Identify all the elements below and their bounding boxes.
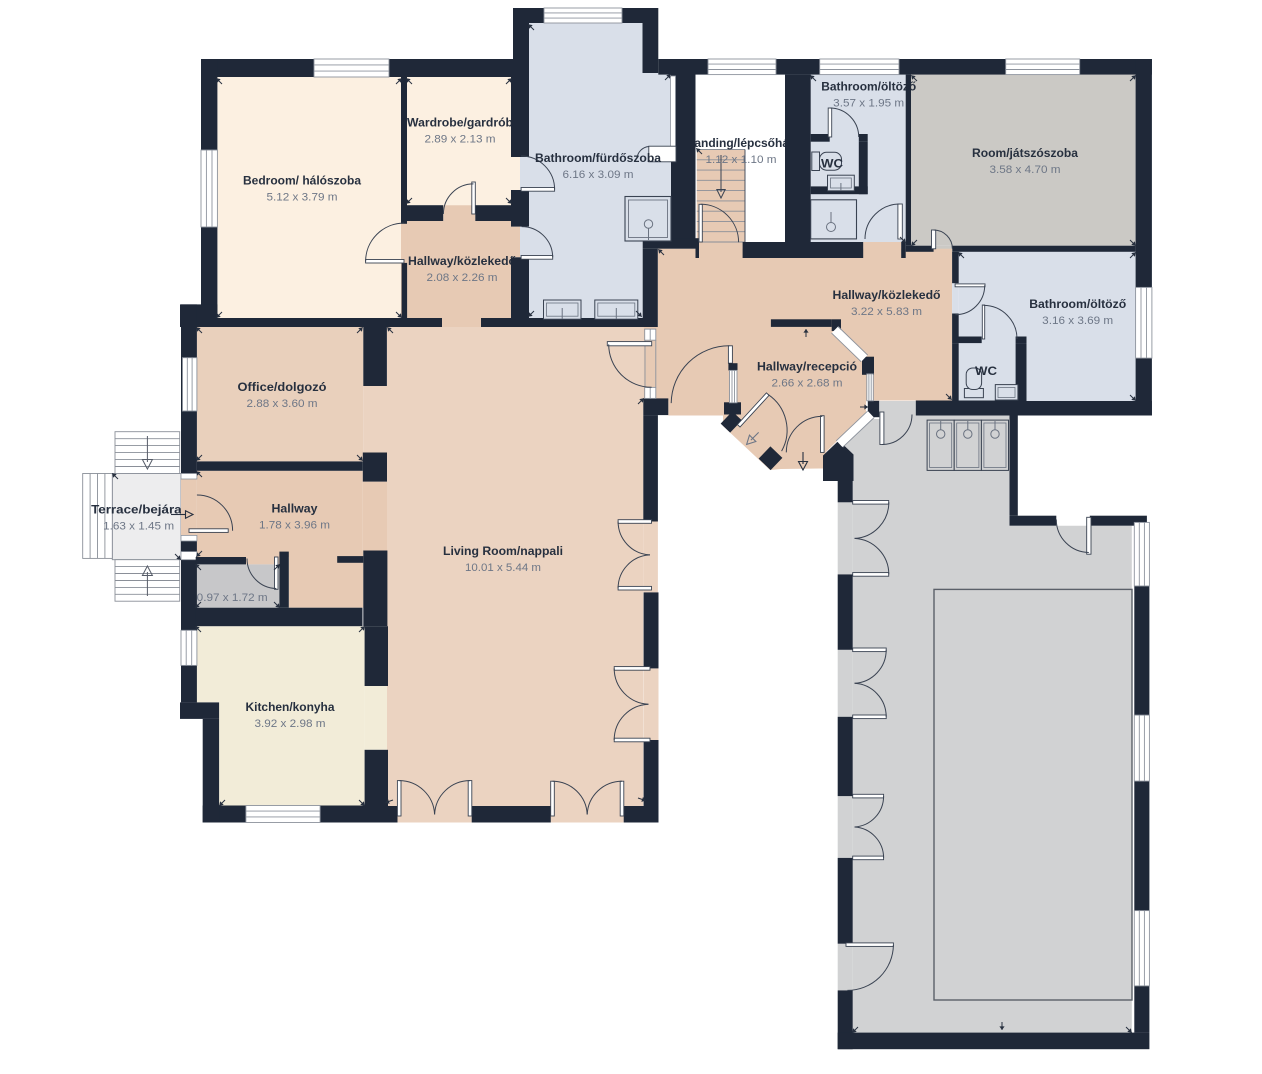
svg-text:5.12 x 3.79 m: 5.12 x 3.79 m xyxy=(267,192,338,204)
svg-text:Bedroom/ hálószoba: Bedroom/ hálószoba xyxy=(243,174,361,188)
svg-text:Hallway/közlekedő: Hallway/közlekedő xyxy=(408,254,516,268)
svg-text:Kitchen/konyha: Kitchen/konyha xyxy=(246,700,335,714)
svg-text:3.16 x 3.69 m: 3.16 x 3.69 m xyxy=(1042,315,1113,327)
svg-text:2.89 x 2.13 m: 2.89 x 2.13 m xyxy=(425,134,496,146)
svg-text:6.16 x 3.09 m: 6.16 x 3.09 m xyxy=(563,169,634,181)
svg-text:WC: WC xyxy=(821,156,843,170)
svg-text:3.58 x 4.70 m: 3.58 x 4.70 m xyxy=(990,164,1061,176)
svg-text:1.78 x 3.96 m: 1.78 x 3.96 m xyxy=(259,520,330,532)
svg-text:Bathroom/öltöző: Bathroom/öltöző xyxy=(821,79,916,93)
svg-text:Hallway/recepció: Hallway/recepció xyxy=(757,360,857,374)
svg-text:2.08 x 2.26 m: 2.08 x 2.26 m xyxy=(427,272,498,284)
svg-text:Room/játszószoba: Room/játszószoba xyxy=(972,146,1078,160)
svg-text:Bathroom/fürdőszoba: Bathroom/fürdőszoba xyxy=(535,151,661,165)
svg-text:Wardrobe/gardrób: Wardrobe/gardrób xyxy=(407,116,513,130)
svg-text:Bathroom/öltöző: Bathroom/öltöző xyxy=(1029,297,1126,311)
svg-text:WC: WC xyxy=(975,364,997,378)
svg-text:0.97 x 1.72 m: 0.97 x 1.72 m xyxy=(197,592,268,604)
svg-text:Hallway: Hallway xyxy=(272,502,318,516)
svg-text:Office/dolgozó: Office/dolgozó xyxy=(238,380,327,394)
svg-text:10.01 x 5.44 m: 10.01 x 5.44 m xyxy=(465,562,541,574)
svg-text:3.92 x 2.98 m: 3.92 x 2.98 m xyxy=(255,718,326,730)
svg-text:3.22 x 5.83 m: 3.22 x 5.83 m xyxy=(851,306,922,318)
svg-text:2.66 x 2.68 m: 2.66 x 2.68 m xyxy=(772,378,843,390)
svg-text:1.12 x 1.10 m: 1.12 x 1.10 m xyxy=(706,154,777,166)
svg-text:Hallway/közlekedő: Hallway/közlekedő xyxy=(833,288,941,302)
svg-text:1.63 x 1.45 m: 1.63 x 1.45 m xyxy=(103,521,174,533)
svg-text:Living Room/nappali: Living Room/nappali xyxy=(443,544,563,558)
svg-text:3.57 x 1.95 m: 3.57 x 1.95 m xyxy=(833,97,904,109)
svg-text:Landing/lépcsőház: Landing/lépcsőház xyxy=(687,136,795,150)
svg-text:2.88 x 3.60 m: 2.88 x 3.60 m xyxy=(247,398,318,410)
